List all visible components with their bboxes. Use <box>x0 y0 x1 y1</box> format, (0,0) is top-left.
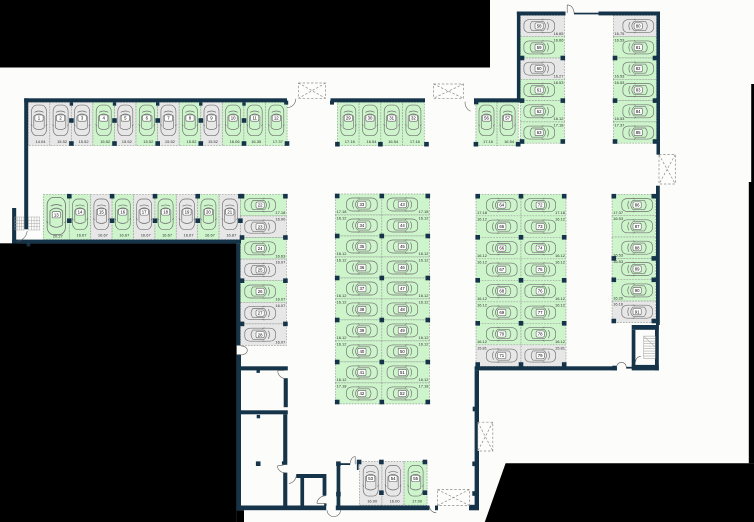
svg-text:62: 62 <box>537 109 542 114</box>
svg-text:16.06: 16.06 <box>230 139 241 144</box>
svg-text:88: 88 <box>635 245 640 250</box>
svg-text:51: 51 <box>400 370 405 375</box>
svg-text:42: 42 <box>360 391 365 396</box>
svg-text:16.54: 16.54 <box>366 139 377 144</box>
svg-text:16.07: 16.07 <box>275 260 286 265</box>
svg-text:16.12: 16.12 <box>418 258 429 263</box>
svg-text:18: 18 <box>163 210 168 215</box>
svg-text:16.12: 16.12 <box>418 216 429 221</box>
svg-text:54: 54 <box>391 476 396 481</box>
svg-text:36: 36 <box>360 265 365 270</box>
svg-text:75: 75 <box>538 267 543 272</box>
svg-text:16.66: 16.66 <box>553 37 564 42</box>
svg-text:12: 12 <box>274 116 279 121</box>
svg-text:35: 35 <box>360 244 365 249</box>
svg-text:16.53: 16.53 <box>613 216 624 221</box>
svg-text:16.12: 16.12 <box>555 302 566 307</box>
svg-text:16.67: 16.67 <box>76 233 87 238</box>
svg-text:78: 78 <box>538 332 543 337</box>
svg-text:38: 38 <box>360 307 365 312</box>
svg-text:17.37: 17.37 <box>613 210 624 215</box>
svg-text:17.18: 17.18 <box>418 384 429 389</box>
svg-text:16.12: 16.12 <box>418 342 429 347</box>
svg-text:57: 57 <box>505 116 510 121</box>
svg-text:46: 46 <box>400 265 405 270</box>
svg-text:16.00: 16.00 <box>367 498 378 503</box>
svg-text:16.67: 16.67 <box>141 233 152 238</box>
svg-text:17.37: 17.37 <box>273 139 284 144</box>
svg-text:16.12: 16.12 <box>418 293 429 298</box>
svg-text:16.12: 16.12 <box>337 258 348 263</box>
svg-text:16.53: 16.53 <box>614 80 625 85</box>
svg-text:15.52: 15.52 <box>79 139 90 144</box>
svg-text:44: 44 <box>400 223 405 228</box>
svg-text:10: 10 <box>231 116 236 121</box>
svg-text:16.00: 16.00 <box>390 498 401 503</box>
svg-text:64: 64 <box>499 203 504 208</box>
svg-text:53: 53 <box>368 476 373 481</box>
svg-text:82: 82 <box>636 66 641 71</box>
svg-text:16.53: 16.53 <box>553 80 564 85</box>
svg-text:16.12: 16.12 <box>418 377 429 382</box>
svg-text:17.00: 17.00 <box>412 498 423 503</box>
svg-text:17.16: 17.16 <box>345 139 356 144</box>
svg-text:16.63: 16.63 <box>275 253 286 258</box>
svg-text:85: 85 <box>636 130 641 135</box>
svg-text:15.52: 15.52 <box>143 139 154 144</box>
svg-text:17.18: 17.18 <box>337 384 348 389</box>
svg-text:90: 90 <box>635 288 640 293</box>
svg-text:17.18: 17.18 <box>477 210 488 215</box>
svg-text:14: 14 <box>78 210 83 215</box>
svg-text:37: 37 <box>360 286 365 291</box>
svg-text:15.52: 15.52 <box>57 139 68 144</box>
svg-text:16.12: 16.12 <box>555 253 566 258</box>
svg-text:16.53: 16.53 <box>614 37 625 42</box>
svg-text:16.12: 16.12 <box>555 339 566 344</box>
svg-text:17.16: 17.16 <box>483 139 494 144</box>
svg-text:16.07: 16.07 <box>275 297 286 302</box>
svg-text:33: 33 <box>360 202 365 207</box>
svg-text:26: 26 <box>258 289 263 294</box>
svg-text:16.12: 16.12 <box>337 342 348 347</box>
svg-text:16.53: 16.53 <box>614 74 625 79</box>
svg-text:15.81: 15.81 <box>477 345 488 350</box>
svg-text:17.18: 17.18 <box>555 210 566 215</box>
svg-text:16.12: 16.12 <box>477 339 488 344</box>
svg-text:16.12: 16.12 <box>477 302 488 307</box>
svg-text:48: 48 <box>400 307 405 312</box>
svg-text:17.18: 17.18 <box>337 209 348 214</box>
svg-text:17.37: 17.37 <box>614 123 625 128</box>
svg-text:27: 27 <box>258 311 263 316</box>
svg-text:16.12: 16.12 <box>337 300 348 305</box>
svg-text:66: 66 <box>499 246 504 251</box>
svg-text:16.07: 16.07 <box>275 340 286 345</box>
svg-text:14.04: 14.04 <box>35 139 46 144</box>
svg-text:68: 68 <box>499 289 504 294</box>
svg-text:16.12: 16.12 <box>337 377 348 382</box>
svg-text:16.27: 16.27 <box>553 74 564 79</box>
svg-text:79: 79 <box>538 353 543 358</box>
svg-text:16.12: 16.12 <box>337 335 348 340</box>
svg-text:67: 67 <box>499 267 504 272</box>
svg-text:16.67: 16.67 <box>162 233 173 238</box>
svg-text:89: 89 <box>635 267 640 272</box>
svg-text:16.12: 16.12 <box>477 216 488 221</box>
svg-text:72: 72 <box>538 203 543 208</box>
svg-text:16.12: 16.12 <box>337 251 348 256</box>
svg-text:84: 84 <box>636 109 641 114</box>
svg-text:69: 69 <box>499 310 504 315</box>
svg-text:20: 20 <box>206 210 211 215</box>
svg-text:16.67: 16.67 <box>205 233 216 238</box>
svg-text:43: 43 <box>400 202 405 207</box>
svg-text:16.65: 16.65 <box>553 31 564 36</box>
svg-text:65: 65 <box>499 224 504 229</box>
svg-text:16.12: 16.12 <box>477 259 488 264</box>
svg-text:61: 61 <box>537 88 542 93</box>
svg-text:60: 60 <box>537 66 542 71</box>
svg-text:83: 83 <box>636 88 641 93</box>
svg-text:80: 80 <box>636 24 641 29</box>
svg-text:77: 77 <box>538 310 543 315</box>
svg-text:70: 70 <box>499 332 504 337</box>
svg-text:39: 39 <box>360 328 365 333</box>
svg-text:16.53: 16.53 <box>614 116 625 121</box>
svg-text:24: 24 <box>258 246 263 251</box>
svg-text:71: 71 <box>499 353 504 358</box>
svg-text:20.27: 20.27 <box>53 233 64 238</box>
svg-text:76: 76 <box>538 289 543 294</box>
svg-text:16.12: 16.12 <box>418 335 429 340</box>
svg-text:74: 74 <box>538 246 543 251</box>
svg-text:15.52: 15.52 <box>100 139 111 144</box>
svg-text:16.12: 16.12 <box>555 259 566 264</box>
svg-text:16.16: 16.16 <box>613 302 624 307</box>
svg-text:73: 73 <box>538 224 543 229</box>
svg-text:16.20: 16.20 <box>613 295 624 300</box>
svg-text:87: 87 <box>635 224 640 229</box>
svg-text:16.12: 16.12 <box>555 216 566 221</box>
svg-text:52: 52 <box>400 391 405 396</box>
svg-text:16.35: 16.35 <box>251 139 262 144</box>
svg-text:17.16: 17.16 <box>410 139 421 144</box>
svg-text:16.12: 16.12 <box>477 296 488 301</box>
svg-text:17.18: 17.18 <box>418 209 429 214</box>
svg-text:63: 63 <box>537 130 542 135</box>
svg-text:16.67: 16.67 <box>183 233 194 238</box>
svg-text:17.18: 17.18 <box>275 210 286 215</box>
svg-text:34: 34 <box>360 223 365 228</box>
svg-text:81: 81 <box>636 45 641 50</box>
svg-text:91: 91 <box>635 309 640 314</box>
svg-text:30: 30 <box>368 116 373 121</box>
svg-text:15.81: 15.81 <box>555 345 566 350</box>
svg-text:16.67: 16.67 <box>98 233 109 238</box>
svg-text:16.87: 16.87 <box>226 233 237 238</box>
svg-text:16.12: 16.12 <box>477 253 488 258</box>
svg-text:15.52: 15.52 <box>186 139 197 144</box>
svg-text:59: 59 <box>537 45 542 50</box>
svg-text:17: 17 <box>142 210 147 215</box>
svg-text:15.52: 15.52 <box>165 139 176 144</box>
svg-text:28: 28 <box>258 332 263 337</box>
svg-text:16.12: 16.12 <box>337 293 348 298</box>
svg-text:56: 56 <box>484 116 489 121</box>
svg-text:21: 21 <box>227 210 232 215</box>
svg-text:16.67: 16.67 <box>119 233 130 238</box>
svg-text:31: 31 <box>389 116 394 121</box>
svg-text:50: 50 <box>400 349 405 354</box>
svg-text:16.54: 16.54 <box>388 139 399 144</box>
svg-text:16.12: 16.12 <box>553 116 564 121</box>
svg-text:16.07: 16.07 <box>275 303 286 308</box>
svg-text:15.52: 15.52 <box>122 139 133 144</box>
svg-text:16.75: 16.75 <box>614 31 625 36</box>
svg-text:16: 16 <box>120 210 125 215</box>
svg-text:19: 19 <box>185 210 190 215</box>
svg-text:16.12: 16.12 <box>418 300 429 305</box>
svg-text:40: 40 <box>360 349 365 354</box>
svg-text:15: 15 <box>99 210 104 215</box>
svg-text:23: 23 <box>258 224 263 229</box>
svg-text:16.00: 16.00 <box>275 217 286 222</box>
svg-text:13: 13 <box>54 212 59 217</box>
svg-text:41: 41 <box>360 370 365 375</box>
svg-text:16.12: 16.12 <box>418 251 429 256</box>
svg-text:11: 11 <box>252 116 257 121</box>
svg-text:58: 58 <box>537 24 542 29</box>
svg-text:22: 22 <box>258 203 263 208</box>
svg-text:16.12: 16.12 <box>555 296 566 301</box>
svg-text:25: 25 <box>258 268 263 273</box>
svg-text:55: 55 <box>413 476 418 481</box>
svg-text:32: 32 <box>411 116 416 121</box>
svg-text:49: 49 <box>400 328 405 333</box>
svg-text:45: 45 <box>400 244 405 249</box>
svg-text:86: 86 <box>635 203 640 208</box>
svg-text:29: 29 <box>346 116 351 121</box>
svg-text:16.54: 16.54 <box>504 139 515 144</box>
svg-text:17.18: 17.18 <box>553 123 564 128</box>
svg-text:15.52: 15.52 <box>208 139 219 144</box>
svg-text:16.12: 16.12 <box>337 216 348 221</box>
svg-text:47: 47 <box>400 286 405 291</box>
